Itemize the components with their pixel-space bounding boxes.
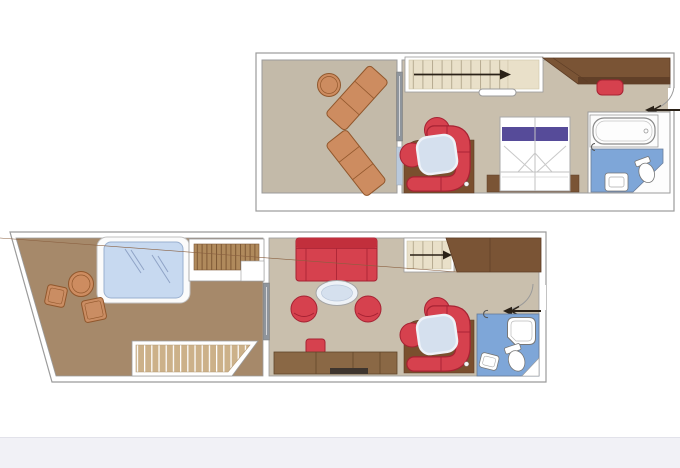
upper-level-plan (256, 53, 680, 211)
tub-chair-left (291, 296, 317, 322)
upper-bathroom (588, 112, 670, 193)
floorplan-screenshot (0, 0, 680, 468)
oval-table-glass-top (322, 285, 353, 301)
shower (508, 318, 536, 345)
tub-chair-right (355, 296, 381, 322)
bathtub (593, 118, 655, 144)
sofa (296, 238, 377, 281)
deck-chair-left (44, 284, 68, 308)
double-bed (487, 117, 579, 192)
balcony-round-table (318, 74, 341, 97)
sideboard (274, 352, 397, 374)
nook-floor-dot (464, 182, 469, 187)
deck-plank-platform (189, 239, 264, 281)
lower-bathroom (477, 310, 539, 376)
whirlpool-hot-tub (97, 237, 190, 303)
lower-staircase (404, 238, 454, 272)
lower-level-plan (0, 232, 546, 382)
stair-landing (508, 60, 539, 89)
nook-glass-table (416, 134, 459, 176)
sofa-back (296, 238, 377, 248)
deck-chair-right (81, 297, 107, 323)
stair-rail-end (479, 89, 516, 96)
deck-platform-notch (241, 261, 264, 281)
sideboard-dark-front (330, 368, 368, 374)
footer-band (0, 437, 680, 468)
vanity-stool (597, 80, 623, 95)
upper-staircase (405, 57, 543, 96)
floor-plans-svg (0, 0, 680, 468)
washbasin (605, 173, 628, 191)
